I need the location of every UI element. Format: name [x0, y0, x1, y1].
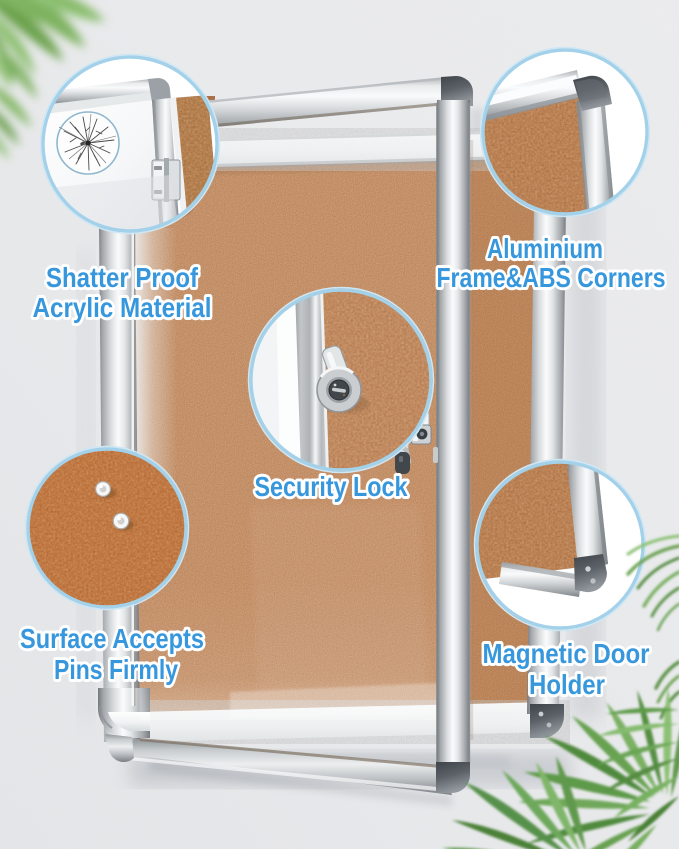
svg-text:Holder: Holder — [529, 669, 605, 700]
svg-text:Shatter Proof: Shatter Proof — [46, 262, 199, 293]
svg-text:Pins Firmly: Pins Firmly — [54, 654, 178, 685]
svg-text:Frame&ABS Corners: Frame&ABS Corners — [437, 262, 666, 293]
svg-text:Surface Accepts: Surface Accepts — [20, 623, 204, 654]
svg-text:Acrylic Material: Acrylic Material — [33, 292, 212, 323]
svg-text:Security Lock: Security Lock — [255, 471, 408, 502]
svg-text:Magnetic Door: Magnetic Door — [483, 638, 650, 669]
svg-text:Aluminium: Aluminium — [487, 233, 603, 264]
